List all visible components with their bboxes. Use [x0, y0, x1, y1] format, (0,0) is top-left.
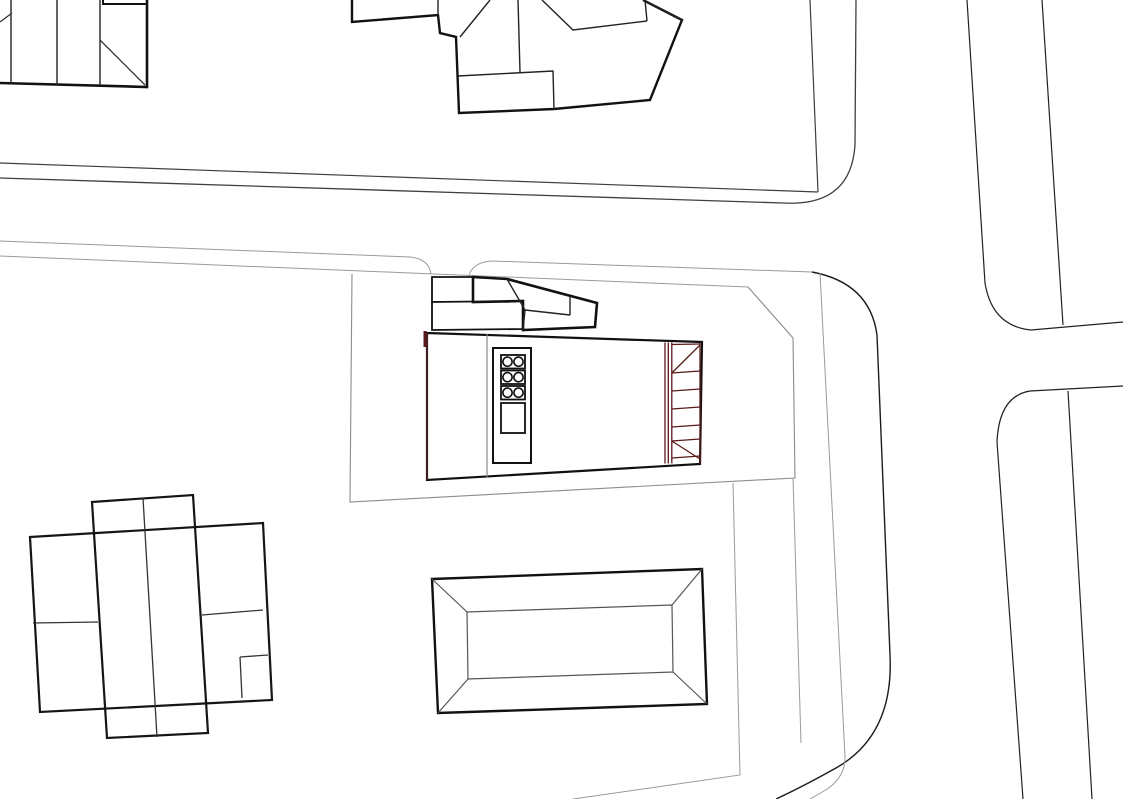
site-plan-canvas — [0, 0, 1123, 799]
lot-line-east — [793, 478, 801, 743]
northwest-building-diagonals — [0, 13, 145, 85]
southeast-block-inner — [1068, 391, 1092, 799]
northwest-building-outline — [0, 0, 147, 87]
north-house-outline — [352, 0, 682, 113]
northwest-building-partitions — [11, 0, 100, 86]
north-house-roof-lines — [438, 0, 682, 109]
south-curb-west — [0, 241, 431, 274]
south-sidewalk-line — [0, 256, 748, 287]
north-block-side-edge — [810, 0, 818, 192]
east-road-east-edge — [1042, 0, 1063, 325]
site-plan-page — [0, 0, 1123, 799]
southeast-block-edge — [997, 386, 1123, 799]
north-block-curb — [0, 0, 856, 203]
canopy-rect-west — [432, 277, 473, 302]
southwest-building-wide-rect — [30, 523, 272, 712]
northwest-building-notch — [103, 0, 147, 4]
building-body — [427, 333, 702, 480]
north-block-inner-edge — [0, 163, 818, 192]
canopy-rect-south — [432, 301, 523, 330]
south-curb-east — [492, 261, 812, 272]
corner-curve-inner — [810, 273, 845, 799]
pool-outer-rect — [432, 569, 707, 713]
main-building — [425, 277, 702, 480]
